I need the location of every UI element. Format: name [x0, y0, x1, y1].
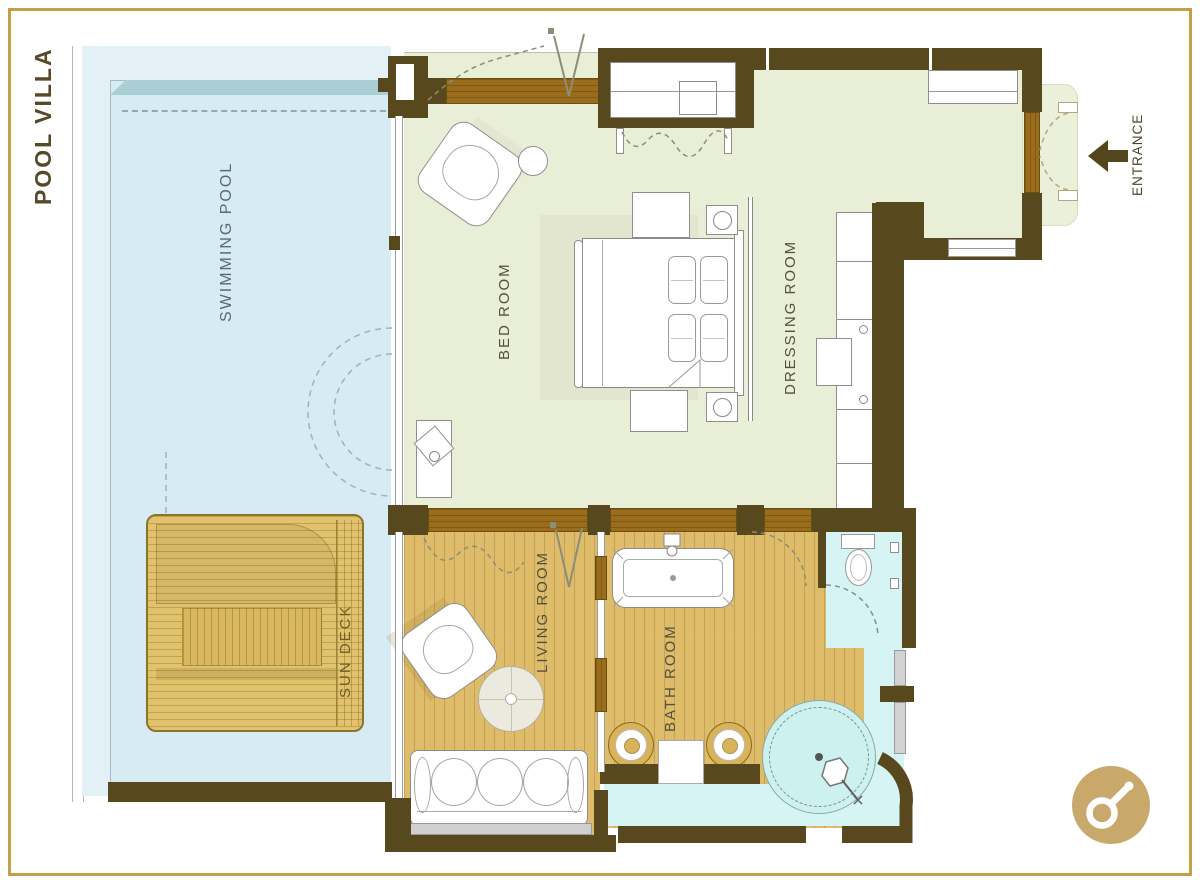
entrance-arrow-icon	[1086, 138, 1130, 174]
bed-headboard	[734, 230, 744, 396]
bed-pillow	[668, 256, 696, 304]
bedroom-desk	[416, 420, 452, 498]
desk-dot	[429, 451, 440, 462]
partition-mullion	[595, 556, 607, 600]
sink-counter-left	[600, 764, 658, 784]
wardrobe-shelf	[837, 409, 873, 410]
wardrobe-knob	[859, 325, 868, 334]
sink-drain	[624, 738, 640, 754]
wardrobe-shelf	[837, 463, 873, 464]
living-window-wall	[395, 532, 403, 800]
armchair-cushion	[414, 615, 481, 681]
bedroom-top-wall	[412, 78, 450, 104]
sun-deck-lounger	[182, 608, 322, 666]
bed-sheet-line	[602, 240, 603, 386]
living-threshold	[428, 508, 588, 532]
toilet-seat	[850, 554, 867, 581]
dressing-room-label: DRESSING ROOM	[782, 240, 799, 395]
sep-post	[737, 505, 764, 535]
lamp	[713, 211, 732, 230]
bedroom-sliding-door	[446, 78, 602, 104]
sink-counter-right	[704, 764, 760, 784]
sink	[608, 722, 654, 768]
dressing-bath-threshold	[764, 508, 812, 532]
closet-post	[616, 128, 624, 154]
entry-door-leaf	[1058, 102, 1078, 113]
table-center	[505, 693, 517, 705]
pool-waterline	[122, 110, 386, 112]
partition-post	[594, 790, 608, 835]
brand-logo	[1072, 766, 1150, 844]
floor-plan-canvas: POOL VILLA SUN DECK SWIMMING POOL	[0, 0, 1200, 884]
sofa-arm-pillow	[414, 757, 431, 813]
closet-tv	[679, 81, 717, 115]
sep-post	[588, 505, 610, 535]
sofa-cushion	[431, 758, 477, 806]
living-room-label: LIVING ROOM	[534, 551, 551, 673]
bath-bottom-wall	[618, 826, 806, 843]
bath-room-label: BATH ROOM	[662, 624, 679, 732]
window-line	[949, 248, 1015, 249]
sink-drain	[722, 738, 738, 754]
sofa-cushion	[523, 758, 569, 806]
nightstand-bottom	[706, 392, 738, 422]
corridor-closet	[928, 70, 1018, 104]
entry-door-leaf	[1058, 190, 1078, 201]
round-shower	[762, 700, 876, 814]
entrance-label: ENTRANCE	[1130, 114, 1145, 196]
headboard-partition	[748, 197, 753, 421]
vanity-desk	[816, 338, 852, 386]
bedroom-side-table	[518, 146, 548, 176]
bath-threshold	[610, 508, 737, 532]
pool-edge-band	[110, 80, 391, 95]
nightstand-top	[706, 205, 738, 235]
bed-pillow	[700, 256, 728, 304]
entry-wall-top	[1022, 48, 1042, 112]
wardrobe-shelf	[837, 261, 873, 262]
wall-seam	[766, 48, 769, 70]
column-core	[396, 64, 414, 100]
sink	[706, 722, 752, 768]
bath-bottom-wall	[842, 826, 906, 843]
closet-line	[929, 91, 1017, 92]
bed-bench	[574, 240, 583, 388]
partition-mullion	[595, 658, 607, 712]
bed-runner-top	[632, 192, 690, 238]
wardrobe-knob	[859, 395, 868, 404]
living-round-table	[478, 666, 544, 732]
bed-room-label: BED ROOM	[496, 262, 513, 360]
armchair-cushion	[434, 134, 510, 209]
corridor-window	[948, 239, 1016, 257]
shower-inner-ring	[769, 707, 869, 807]
living-bottom-wall	[385, 835, 616, 852]
corridor-top-wall	[754, 48, 1022, 70]
sofa-seat-line	[417, 811, 581, 812]
sun-deck	[146, 514, 364, 732]
sun-deck-band	[156, 668, 336, 680]
sun-deck-mat-top	[156, 524, 336, 604]
page-title: POOL VILLA	[30, 47, 57, 205]
wall-seam	[929, 48, 932, 70]
shower-glass-panel	[894, 702, 906, 754]
bed-pillow	[668, 314, 696, 362]
sofa-cushion	[477, 758, 523, 806]
dressing-right-wall	[872, 203, 904, 518]
bedroom-window-wall	[395, 116, 403, 506]
wall-stub	[880, 686, 914, 702]
toilet-tank	[841, 534, 875, 549]
sun-deck-label: SUN DECK	[337, 604, 354, 698]
bathtub-basin	[623, 559, 723, 597]
wc-fixture	[890, 542, 899, 553]
toilet-bowl	[845, 549, 872, 586]
sofa	[410, 750, 588, 826]
wardrobe-shelf	[837, 319, 873, 320]
wc-right-wall	[902, 508, 916, 648]
bed-pillow	[700, 314, 728, 362]
closet-interior	[610, 62, 736, 118]
lamp	[713, 398, 732, 417]
bathtub	[612, 548, 734, 608]
wc-fixture	[890, 578, 899, 589]
entrance-door	[1024, 112, 1040, 193]
swimming-pool-label: SWIMMING POOL	[218, 162, 236, 322]
closet-post	[724, 128, 732, 154]
wc-left-wall	[818, 532, 826, 588]
shower-glass-panel	[894, 650, 906, 686]
sofa-sill	[398, 823, 592, 835]
window-mullion	[389, 236, 400, 250]
wc-top-wall	[812, 508, 906, 532]
towel-niche	[658, 740, 704, 784]
sep-post	[388, 505, 428, 535]
pool-bottom-wall	[108, 782, 392, 802]
bed-runner-bottom	[630, 390, 688, 432]
brand-key-icon	[1072, 766, 1150, 844]
sofa-arm-pillow	[567, 757, 584, 813]
